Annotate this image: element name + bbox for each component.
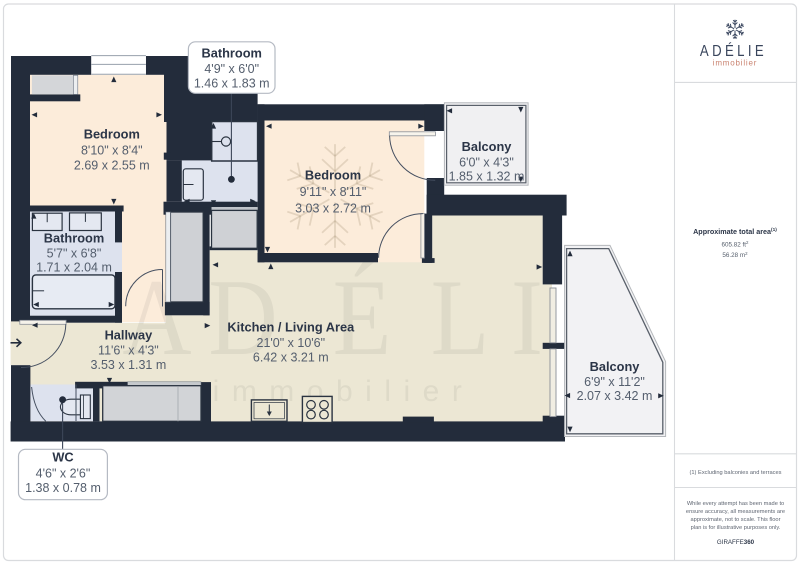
svg-text:4'6" x 2'6": 4'6" x 2'6" — [36, 467, 91, 481]
svg-text:9'11" x 8'11": 9'11" x 8'11" — [300, 185, 367, 199]
svg-text:I: I — [511, 258, 543, 378]
svg-text:1.46 x 1.83 m: 1.46 x 1.83 m — [194, 77, 270, 91]
svg-text:1.38 x 0.78 m: 1.38 x 0.78 m — [25, 481, 101, 495]
svg-text:4'9" x 6'0": 4'9" x 6'0" — [204, 62, 259, 76]
svg-text:ensure accuracy, all measureme: ensure accuracy, all measurements are — [686, 509, 785, 515]
svg-text:Balcony: Balcony — [462, 139, 513, 154]
svg-text:6'9" x 11'2": 6'9" x 11'2" — [584, 375, 645, 389]
svg-text:Bathroom: Bathroom — [44, 231, 104, 246]
svg-text:56.28 m2: 56.28 m2 — [722, 251, 748, 259]
svg-text:WC: WC — [52, 450, 73, 465]
svg-text:5'7" x 6'8": 5'7" x 6'8" — [47, 247, 102, 261]
svg-text:approximate, not to scale. Thi: approximate, not to scale. This floor — [691, 517, 781, 523]
svg-text:Bathroom: Bathroom — [201, 46, 261, 61]
svg-text:Balcony: Balcony — [590, 359, 641, 374]
svg-text:21'0" x 10'6": 21'0" x 10'6" — [257, 336, 326, 350]
svg-text:6'0" x 4'3": 6'0" x 4'3" — [459, 155, 514, 169]
svg-text:3.03 x 2.72 m: 3.03 x 2.72 m — [295, 202, 371, 216]
svg-text:2.69 x 2.55 m: 2.69 x 2.55 m — [74, 159, 150, 173]
svg-text:(1) Excluding balconies and te: (1) Excluding balconies and terraces — [690, 470, 782, 476]
svg-text:1.71 x 2.04 m: 1.71 x 2.04 m — [36, 261, 112, 275]
svg-text:plan is for illustrative purpo: plan is for illustrative purposes only. — [691, 525, 781, 531]
svg-text:1.85 x 1.32 m: 1.85 x 1.32 m — [449, 170, 525, 184]
svg-text:11'6" x 4'3": 11'6" x 4'3" — [98, 344, 159, 358]
svg-text:L: L — [431, 258, 490, 378]
svg-text:É: É — [333, 258, 392, 378]
svg-text:Kitchen / Living Area: Kitchen / Living Area — [227, 320, 355, 335]
svg-text:3.53 x 1.31 m: 3.53 x 1.31 m — [91, 358, 167, 372]
svg-text:Approximate total area(1): Approximate total area(1) — [693, 227, 777, 236]
svg-text:2.07 x 3.42 m: 2.07 x 3.42 m — [577, 389, 653, 403]
svg-text:6.42 x 3.21 m: 6.42 x 3.21 m — [253, 351, 329, 365]
svg-text:While every attempt has been m: While every attempt has been made to — [687, 501, 784, 507]
svg-text:Bedroom: Bedroom — [84, 127, 140, 142]
svg-text:Bedroom: Bedroom — [305, 168, 361, 183]
svg-text:8'10" x 8'4": 8'10" x 8'4" — [81, 144, 143, 158]
svg-text:GIRAFFE360: GIRAFFE360 — [717, 539, 755, 546]
svg-text:immobilier: immobilier — [713, 59, 757, 68]
svg-text:605.82 ft2: 605.82 ft2 — [722, 240, 750, 248]
svg-text:Hallway: Hallway — [105, 328, 154, 343]
